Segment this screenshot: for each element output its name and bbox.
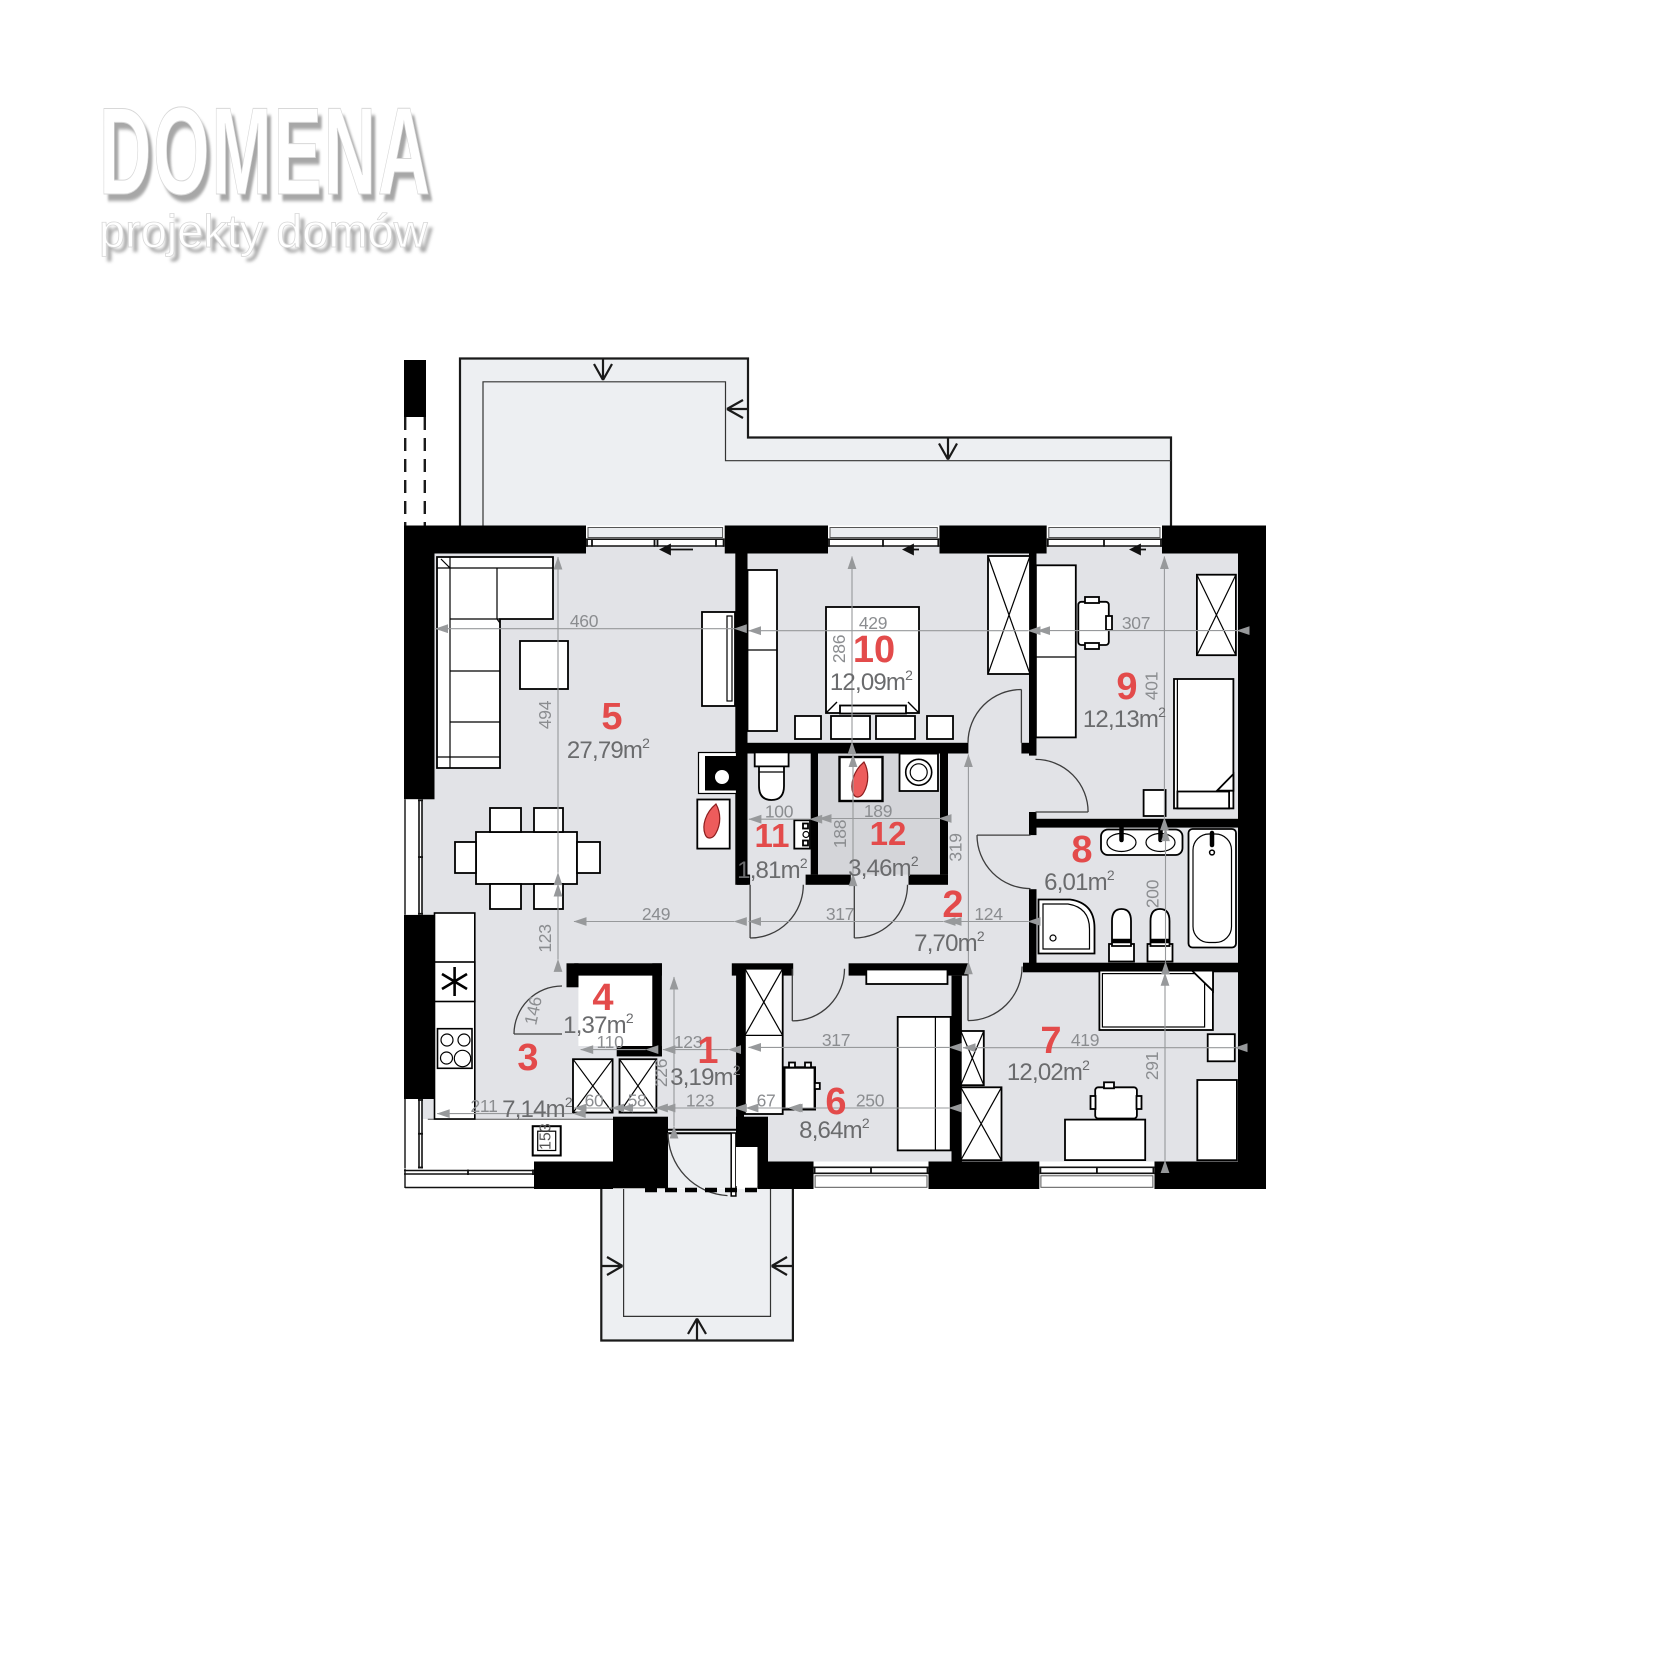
svg-text:6,01m2: 6,01m2 — [1044, 867, 1115, 896]
svg-text:12: 12 — [870, 815, 907, 852]
svg-text:200: 200 — [1143, 879, 1163, 908]
svg-text:317: 317 — [822, 1030, 850, 1050]
svg-text:319: 319 — [945, 833, 965, 861]
svg-text:12,09m2: 12,09m2 — [830, 667, 913, 696]
svg-text:494: 494 — [535, 700, 555, 729]
svg-text:226: 226 — [651, 1059, 671, 1087]
svg-text:3,46m2: 3,46m2 — [848, 853, 919, 882]
svg-text:DOMENA: DOMENA — [99, 82, 432, 221]
svg-text:2: 2 — [942, 884, 963, 926]
svg-text:460: 460 — [570, 611, 599, 631]
svg-text:12,02m2: 12,02m2 — [1007, 1057, 1090, 1086]
svg-text:123: 123 — [535, 924, 555, 952]
svg-text:188: 188 — [830, 820, 850, 848]
svg-text:317: 317 — [826, 904, 854, 924]
svg-text:7: 7 — [1040, 1020, 1061, 1062]
svg-text:286: 286 — [829, 635, 849, 663]
svg-text:10: 10 — [853, 629, 895, 671]
svg-text:60: 60 — [585, 1091, 604, 1111]
svg-text:419: 419 — [1071, 1030, 1099, 1050]
svg-text:5: 5 — [601, 696, 622, 738]
svg-text:307: 307 — [1122, 613, 1150, 633]
svg-text:401: 401 — [1141, 672, 1161, 700]
svg-text:9: 9 — [1116, 666, 1137, 708]
svg-text:27,79m2: 27,79m2 — [567, 735, 650, 764]
svg-text:projekty domów: projekty domów — [99, 205, 428, 256]
svg-text:7,70m2: 7,70m2 — [914, 928, 985, 957]
svg-text:291: 291 — [1142, 1052, 1162, 1080]
svg-text:12,13m2: 12,13m2 — [1083, 704, 1166, 733]
svg-text:7,14m2: 7,14m2 — [502, 1094, 573, 1123]
svg-text:211: 211 — [471, 1096, 498, 1116]
svg-text:3,19m2: 3,19m2 — [670, 1062, 741, 1091]
svg-text:3: 3 — [517, 1037, 538, 1079]
svg-text:11: 11 — [755, 817, 790, 854]
svg-text:8: 8 — [1071, 829, 1092, 871]
svg-text:1,37m2: 1,37m2 — [563, 1010, 634, 1039]
svg-text:1,81m2: 1,81m2 — [737, 855, 808, 884]
svg-text:250: 250 — [856, 1091, 885, 1111]
svg-text:124: 124 — [974, 904, 1003, 924]
svg-text:123: 123 — [686, 1091, 714, 1111]
svg-text:58: 58 — [628, 1091, 647, 1111]
svg-text:8,64m2: 8,64m2 — [799, 1115, 870, 1144]
svg-text:153: 153 — [538, 1123, 555, 1150]
svg-text:249: 249 — [642, 904, 670, 924]
svg-text:67: 67 — [757, 1091, 776, 1111]
